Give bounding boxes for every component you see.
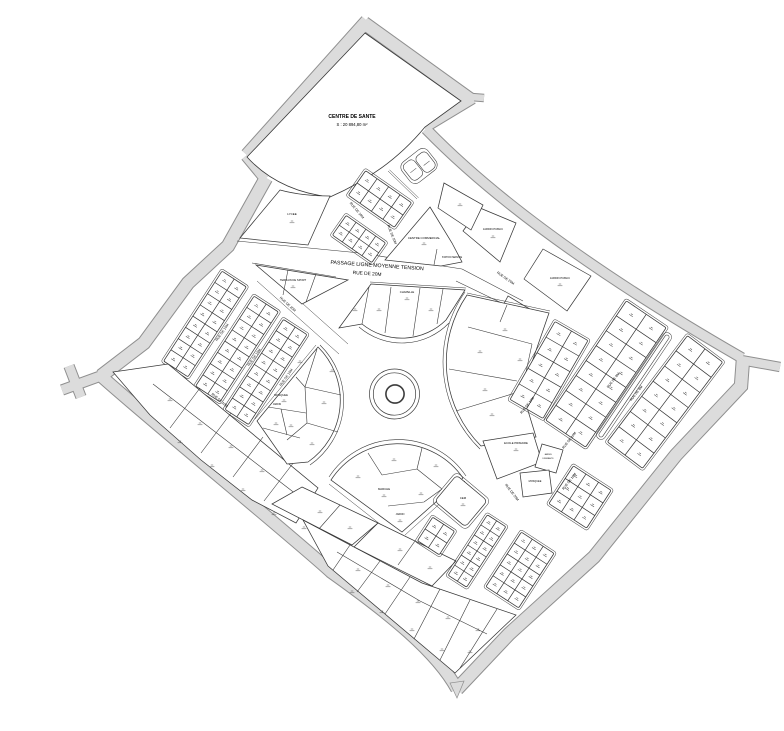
svg-text:MOSQUEE: MOSQUEE [529, 480, 542, 483]
svg-text:LYCEE: LYCEE [287, 212, 297, 216]
svg-text:CHAPELLE: CHAPELLE [400, 290, 415, 294]
svg-text:JARDIN PUBLIC: JARDIN PUBLIC [550, 276, 570, 280]
svg-text:ECOLE PRIMAIRE: ECOLE PRIMAIRE [504, 441, 528, 445]
svg-text:MARCHE: MARCHE [378, 487, 390, 491]
svg-text:D'ENFANTS: D'ENFANTS [542, 457, 554, 460]
svg-text:JARDIN: JARDIN [396, 513, 405, 516]
svg-text:CENTRE COMMERCIAL: CENTRE COMMERCIAL [408, 236, 441, 240]
svg-text:TERRAIN DE SPORT: TERRAIN DE SPORT [280, 278, 307, 282]
svg-text:S : 20 894,80 m²: S : 20 894,80 m² [337, 122, 369, 127]
svg-text:JARDIN PUBLIC: JARDIN PUBLIC [483, 227, 503, 231]
svg-text:CENTRE DE SANTE: CENTRE DE SANTE [328, 114, 376, 120]
svg-text:JARDIN: JARDIN [273, 403, 282, 406]
svg-text:JARDIN: JARDIN [544, 453, 552, 456]
svg-text:STATION SERVICE: STATION SERVICE [442, 256, 463, 259]
svg-text:CEM: CEM [460, 496, 467, 500]
